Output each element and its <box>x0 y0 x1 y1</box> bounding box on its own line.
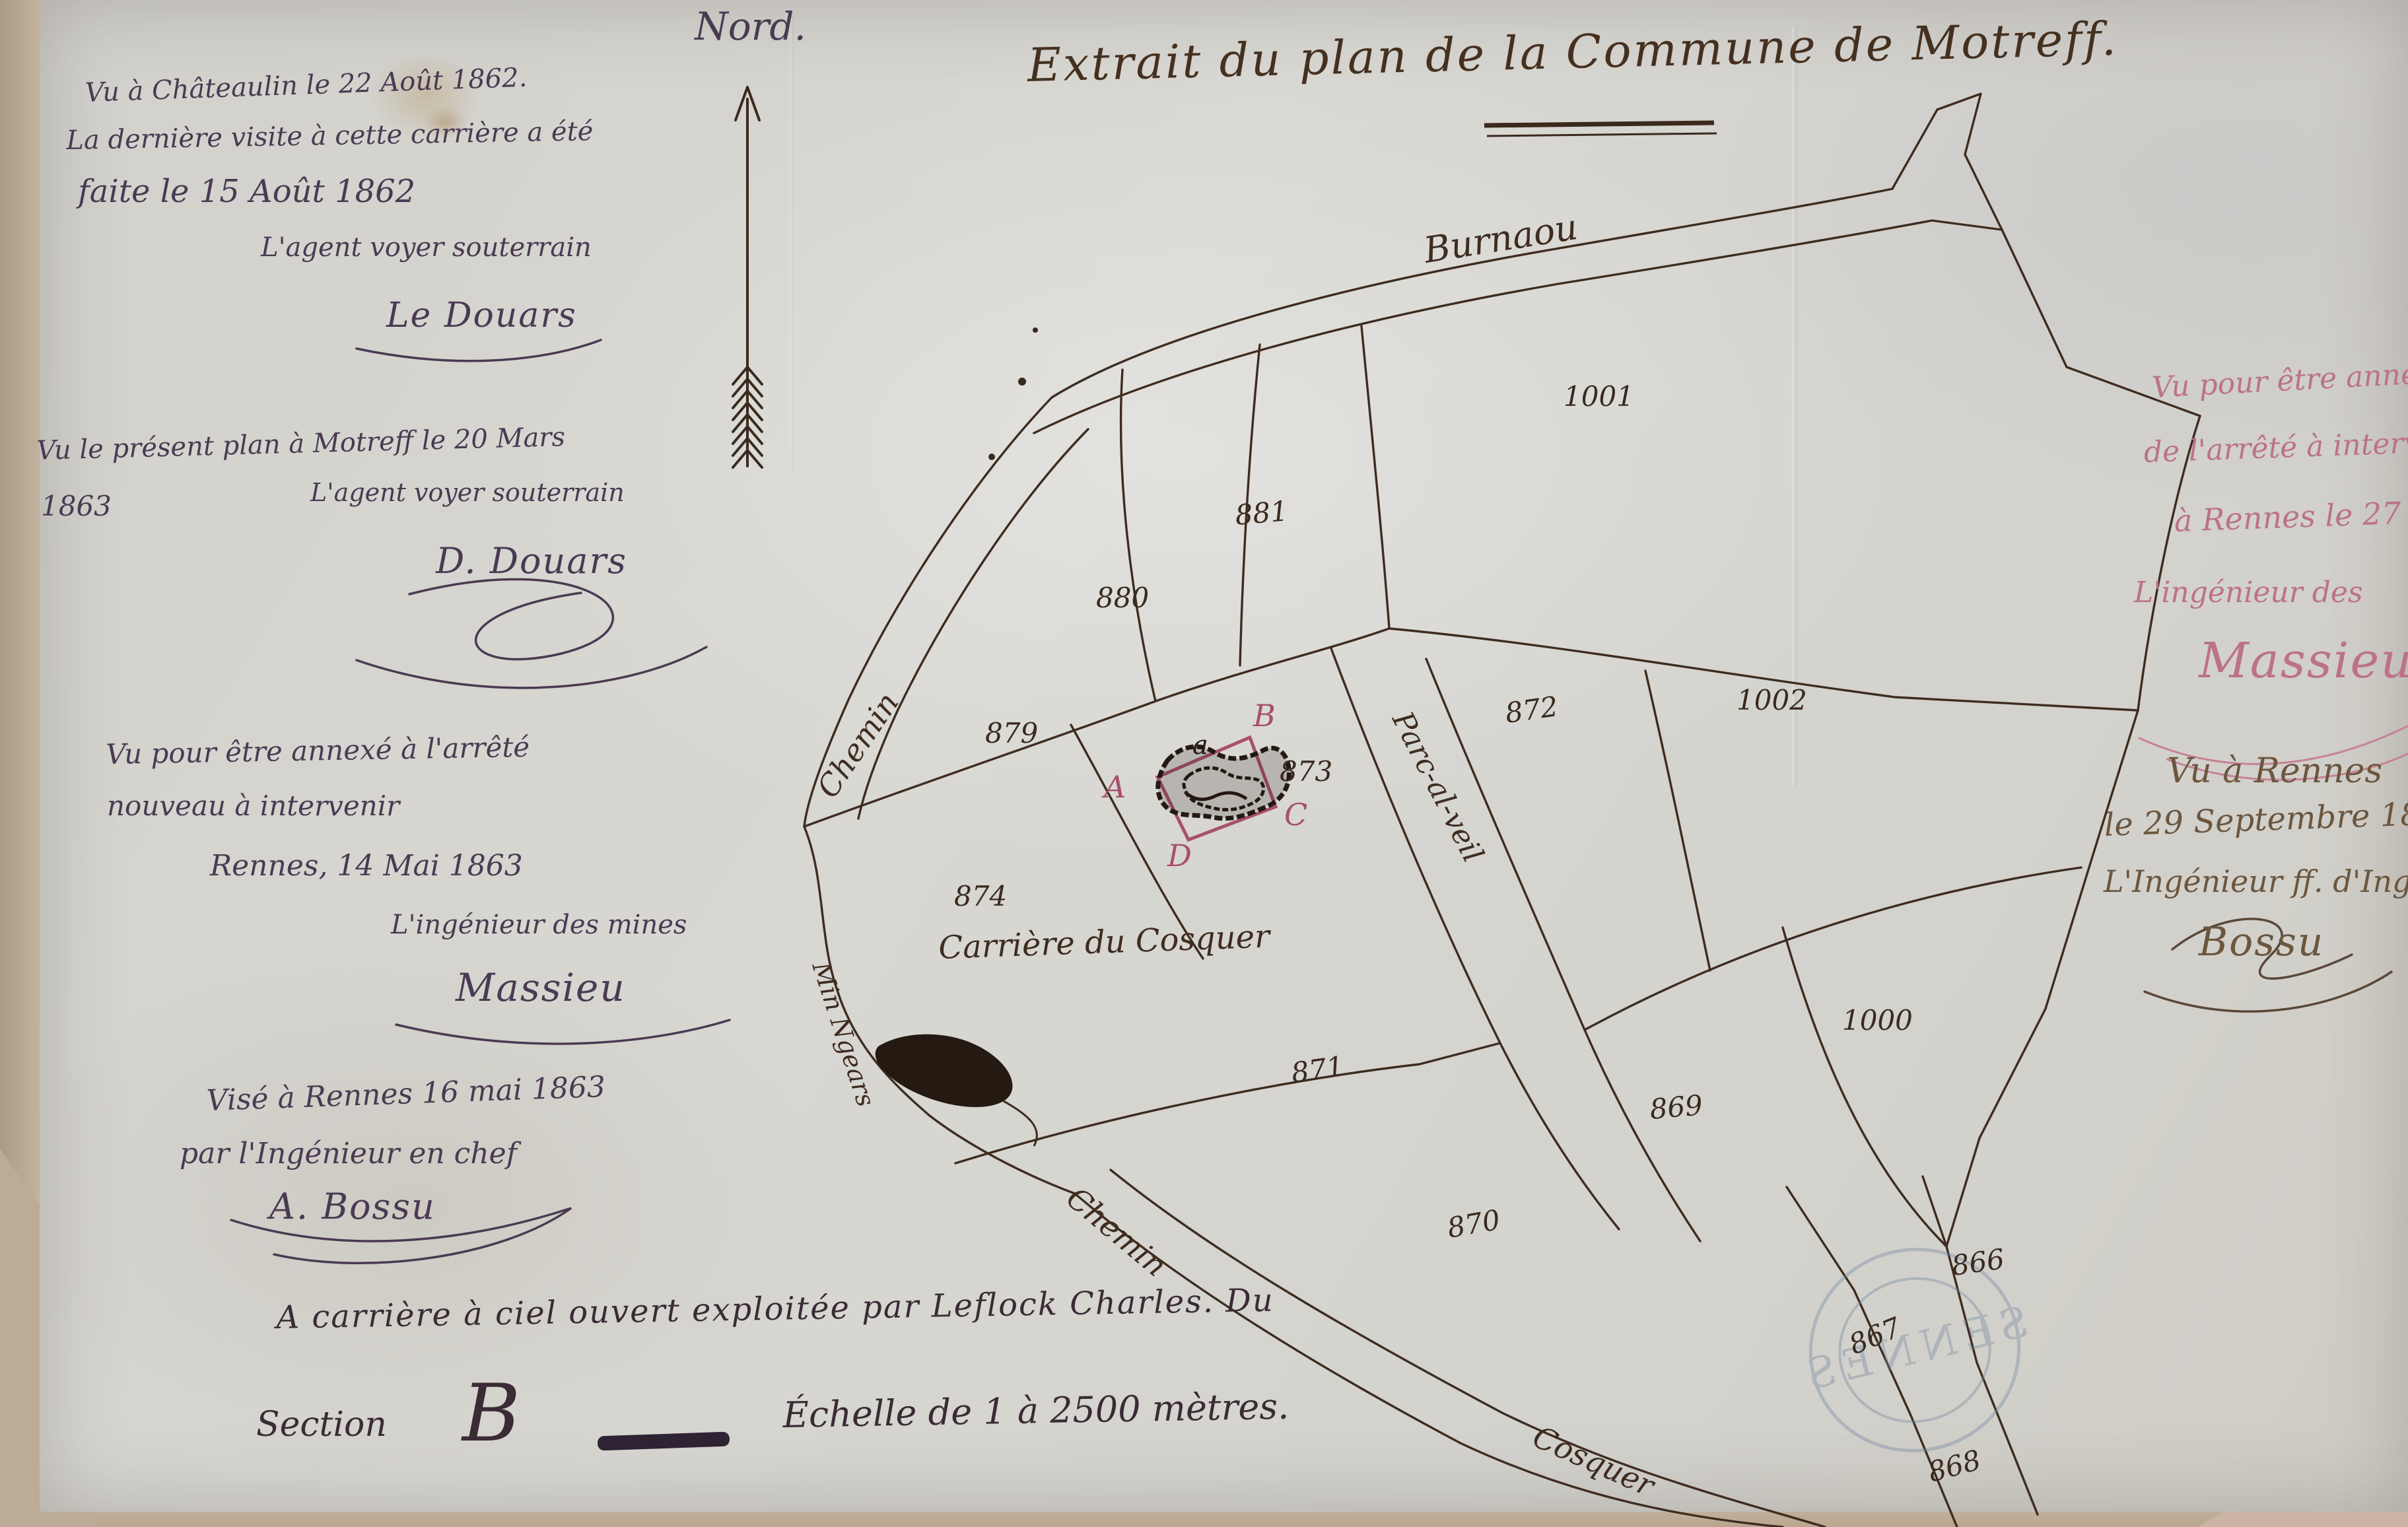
place-label: Carrière du Cosquer <box>938 918 1272 967</box>
signature-bossu-right: Bossu <box>2199 919 2324 965</box>
quarry-point-a: a <box>1192 730 1208 761</box>
rennes-note-line1: Vu à Rennes <box>2167 751 2382 791</box>
section-letter: B <box>462 1368 520 1460</box>
section-label: Section <box>256 1405 387 1444</box>
quarry-marker-square <box>1157 737 1289 840</box>
scale-label: Échelle de 1 à 2500 mètres. <box>782 1386 1290 1436</box>
parcel-number-866: 866 <box>1950 1242 2007 1282</box>
road-label: Parc-al-veil <box>1385 706 1490 868</box>
stamp-text: SENNES <box>1795 1297 2034 1401</box>
parcel-number-879: 879 <box>985 717 1038 749</box>
note-chateaulin-line4: L'agent voyer souterrain <box>261 232 592 263</box>
parcel-number-1000: 1000 <box>1842 1004 1913 1036</box>
place-label: Min Ngears <box>806 957 881 1110</box>
note-vise-line2: par l'Ingénieur en chef <box>180 1137 517 1171</box>
scanned-map-document: SENNES 100188188087987210028738748718691… <box>0 0 2408 1527</box>
note-annexe-line2: nouveau à intervenir <box>107 790 399 822</box>
parcel-number-874: 874 <box>954 880 1007 912</box>
road-label: Cosquer <box>1528 1419 1662 1505</box>
title-underline <box>1484 123 1717 136</box>
ink-stamp: SENNES <box>1777 1225 2052 1476</box>
note-motreff-line3: L'agent voyer souterrain <box>310 478 625 507</box>
parcel-number-881: 881 <box>1234 494 1290 531</box>
note-motreff-year: 1863 <box>41 490 112 522</box>
quarry-corner-C: C <box>1284 797 1307 832</box>
note-annexe-date: Rennes, 14 Mai 1863 <box>210 849 523 883</box>
parcel-number-1001: 1001 <box>1564 380 1634 413</box>
note-chateaulin-line3: faite le 15 Août 1862 <box>78 173 415 210</box>
parcel-number-873: 873 <box>1280 755 1332 788</box>
stream-line <box>1004 1101 1037 1146</box>
note-annexe-line4: L'ingénieur des mines <box>391 910 687 940</box>
signature-douars-2: D. Douars <box>436 540 627 582</box>
north-label: Nord. <box>695 4 806 49</box>
signature-bossu-left: A. Bossu <box>269 1186 436 1227</box>
pink-note-line4: L'ingénieur des <box>2134 576 2363 609</box>
quarry-corner-A: A <box>1101 769 1126 805</box>
quarry-corner-D: D <box>1167 838 1192 873</box>
parcel-number-1002: 1002 <box>1737 684 1807 716</box>
quarry-corner-B: B <box>1253 698 1276 733</box>
parcel-number-870: 870 <box>1445 1204 1502 1244</box>
signature-massieu-pink: Massieu <box>2199 632 2408 689</box>
parcel-number-871: 871 <box>1290 1050 1346 1089</box>
road-label: Chemin <box>809 686 905 804</box>
rennes-note-line3: L'Ingénieur ff. d'Ing <box>2104 864 2408 899</box>
signature-douars-1: Le Douars <box>386 296 577 335</box>
north-arrow <box>733 87 762 467</box>
road-label: Chemin <box>1060 1180 1174 1283</box>
quarry-scribble <box>1158 747 1290 819</box>
parcel-number-872: 872 <box>1503 690 1560 730</box>
pond-shape <box>876 1035 1013 1107</box>
signature-massieu-left: Massieu <box>456 965 626 1010</box>
parcel-number-869: 869 <box>1649 1089 1704 1126</box>
road-label: Burnaou <box>1420 206 1581 271</box>
parcel-number-880: 880 <box>1096 582 1149 614</box>
